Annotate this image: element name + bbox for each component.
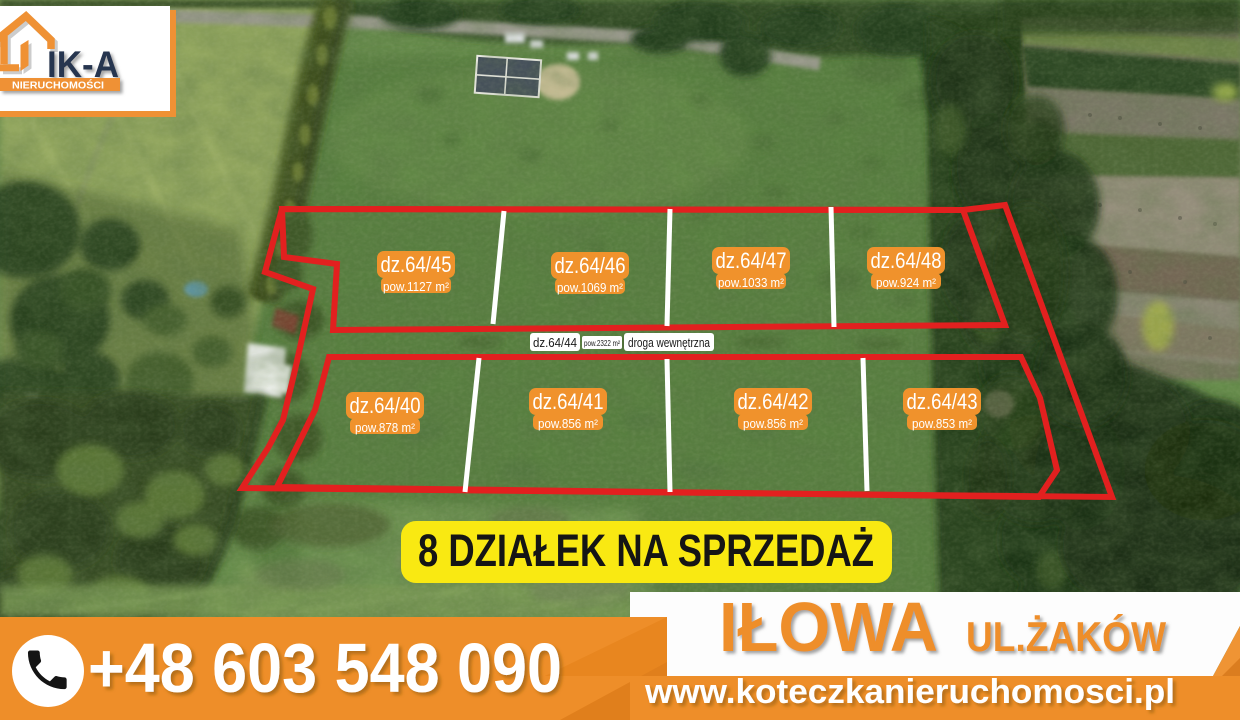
svg-text:NIERUCHOMOŚCI: NIERUCHOMOŚCI [12, 79, 104, 92]
svg-text:8 DZIAŁEK NA SPRZEDAŻ: 8 DZIAŁEK NA SPRZEDAŻ [418, 525, 874, 576]
svg-text:www.koteczkanieruchomosci.pl: www.koteczkanieruchomosci.pl [644, 673, 1175, 711]
svg-text:pow.2322 m²: pow.2322 m² [584, 339, 620, 348]
svg-text:dz.64/40: dz.64/40 [350, 393, 421, 418]
svg-text:pow.856 m²: pow.856 m² [743, 416, 804, 431]
svg-text:pow.924 m²: pow.924 m² [876, 275, 937, 290]
svg-text:dz.64/44: dz.64/44 [533, 336, 577, 350]
svg-text:UL.ŻAKÓW: UL.ŻAKÓW [966, 612, 1166, 660]
svg-text:pow.1069 m²: pow.1069 m² [557, 280, 624, 295]
svg-text:IŁOWA: IŁOWA [719, 588, 938, 666]
svg-text:pow.1033 m²: pow.1033 m² [718, 275, 785, 290]
svg-text:pow.1127 m²: pow.1127 m² [383, 279, 450, 294]
svg-text:droga wewnętrzna: droga wewnętrzna [628, 336, 710, 350]
svg-text:dz.64/46: dz.64/46 [555, 253, 626, 278]
svg-text:pow.856 m²: pow.856 m² [538, 416, 599, 431]
svg-text:dz.64/45: dz.64/45 [381, 252, 452, 277]
svg-text:+48 603 548 090: +48 603 548 090 [88, 629, 562, 707]
svg-text:pow.853 m²: pow.853 m² [912, 416, 973, 431]
svg-text:dz.64/41: dz.64/41 [533, 389, 604, 414]
svg-text:dz.64/47: dz.64/47 [716, 248, 787, 273]
svg-text:dz.64/43: dz.64/43 [907, 389, 978, 414]
svg-text:pow.878 m²: pow.878 m² [355, 420, 416, 435]
svg-text:dz.64/48: dz.64/48 [871, 248, 942, 273]
svg-text:dz.64/42: dz.64/42 [738, 389, 809, 414]
